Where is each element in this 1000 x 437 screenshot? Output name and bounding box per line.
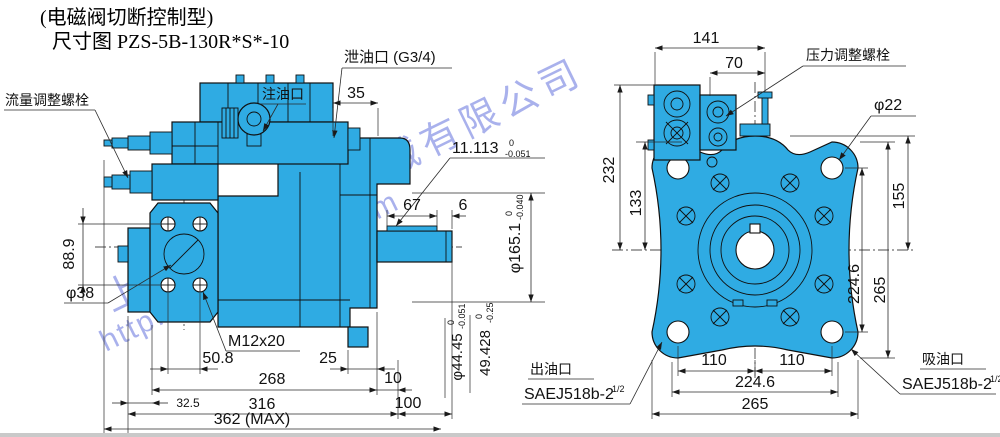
dim-133: 133 bbox=[628, 190, 645, 217]
drawing-canvas: 上海台拓液压机械有限公司 http://www.ttyytw.com (电磁阀切… bbox=[0, 0, 1000, 437]
dim-32-5: 32.5 bbox=[176, 396, 200, 410]
dim-141: 141 bbox=[693, 30, 720, 47]
dim-224-6-v: 224.6 bbox=[846, 264, 863, 304]
mounting-foot bbox=[348, 327, 368, 347]
dim-phi22: φ22 bbox=[874, 97, 902, 114]
dim-key-tol-upper: 0 bbox=[509, 138, 514, 148]
svg-text:吸油口: 吸油口 bbox=[922, 351, 964, 367]
valve-bolt bbox=[266, 75, 274, 83]
dim-70: 70 bbox=[725, 55, 743, 72]
ear-hole-top-right bbox=[821, 157, 843, 179]
svg-text:224.6: 224.6 bbox=[846, 264, 863, 304]
dim-phi38: φ38 bbox=[66, 285, 94, 302]
filler-neck bbox=[247, 134, 261, 146]
valve-bolt bbox=[296, 75, 304, 83]
drawing-model-title: 尺寸图 PZS-5B-130R*S*-10 bbox=[52, 30, 289, 53]
svg-text:SAEJ518b-2: SAEJ518b-2 bbox=[902, 376, 992, 393]
svg-text:φ44.45: φ44.45 bbox=[449, 333, 466, 380]
svg-text:1/2: 1/2 bbox=[990, 374, 1000, 384]
dim-110-left: 110 bbox=[701, 352, 727, 369]
dim-key-width: 11.113 bbox=[452, 140, 499, 157]
dim-35: 35 bbox=[347, 85, 365, 102]
dim-155: 155 bbox=[891, 183, 908, 210]
valve-sub-block bbox=[152, 164, 218, 200]
svg-text:232: 232 bbox=[601, 157, 618, 184]
top-cap bbox=[740, 124, 770, 136]
fill-port-label: 注油口 bbox=[262, 86, 304, 102]
rear-stub bbox=[118, 246, 128, 262]
dim-port-height: 49.428 0 -0.25 bbox=[474, 302, 495, 375]
shaft-key bbox=[387, 226, 437, 231]
manifold-fitting bbox=[348, 128, 360, 150]
dim-pilot-diameter: φ165.1 0 -0.040 bbox=[504, 194, 525, 273]
svg-text:265: 265 bbox=[872, 277, 889, 304]
label-m12x20: M12x20 bbox=[228, 333, 285, 350]
dim-265: 265 bbox=[742, 396, 769, 413]
dim-25: 25 bbox=[319, 350, 337, 367]
dim-100: 100 bbox=[395, 395, 422, 412]
svg-text:SAEJ518b-2: SAEJ518b-2 bbox=[524, 386, 614, 403]
svg-text:φ165.1: φ165.1 bbox=[507, 223, 524, 274]
svg-text:-0.040: -0.040 bbox=[515, 194, 525, 220]
flow-adjust-screw bbox=[104, 132, 172, 154]
dim-port-diameter: φ44.45 0 -0.051 bbox=[446, 303, 467, 380]
svg-text:出油口: 出油口 bbox=[530, 361, 572, 377]
pressure-adjust-label: 压力调整螺栓 bbox=[806, 47, 890, 63]
svg-text:-0.25: -0.25 bbox=[485, 302, 495, 323]
drawing-type-title: (电磁阀切断控制型) bbox=[40, 6, 213, 29]
dim-268: 268 bbox=[259, 371, 286, 388]
shaft-hole bbox=[736, 231, 774, 269]
svg-text:88.9: 88.9 bbox=[61, 238, 78, 269]
svg-text:0: 0 bbox=[446, 320, 456, 325]
dim-265-v: 265 bbox=[872, 277, 889, 304]
top-rod-cap bbox=[758, 92, 772, 98]
dimension-drawing-page: 上海台拓液压机械有限公司 http://www.ttyytw.com (电磁阀切… bbox=[0, 0, 1000, 437]
flange-tab bbox=[767, 300, 777, 306]
svg-text:49.428: 49.428 bbox=[477, 330, 494, 376]
dim-362-max: 362 (MAX) bbox=[214, 411, 290, 428]
svg-text:1/2: 1/2 bbox=[612, 384, 625, 394]
oil-filler-ring-hole bbox=[247, 112, 261, 126]
svg-text:0: 0 bbox=[474, 314, 484, 319]
top-rod bbox=[762, 97, 768, 124]
window-edge bbox=[0, 433, 1000, 437]
lower-adjust-screw bbox=[104, 171, 152, 193]
pump-front-view bbox=[612, 82, 915, 378]
rear-cover bbox=[128, 228, 152, 312]
ear-hole-bottom-right bbox=[821, 321, 843, 343]
dim-67: 67 bbox=[403, 197, 421, 214]
dim-10: 10 bbox=[384, 370, 402, 387]
dim-110-right: 110 bbox=[779, 352, 805, 369]
keyway bbox=[750, 224, 760, 233]
svg-text:-0.051: -0.051 bbox=[457, 303, 467, 329]
svg-text:133: 133 bbox=[628, 190, 645, 217]
svg-text:155: 155 bbox=[891, 183, 908, 210]
valve-bolt bbox=[236, 75, 244, 83]
flange-tab bbox=[733, 300, 743, 306]
flow-adjust-label: 流量调整螺栓 bbox=[5, 92, 89, 108]
outlet-port-label: 出油口 SAEJ518b-2 1/2 bbox=[522, 342, 662, 404]
dim-6: 6 bbox=[459, 197, 468, 214]
dim-224-6: 224.6 bbox=[735, 374, 775, 391]
drain-port-label: 泄油口 (G3/4) bbox=[344, 49, 436, 66]
ear-hole-bottom-left bbox=[667, 321, 689, 343]
drive-shaft bbox=[377, 231, 452, 262]
inlet-port-label: 吸油口 SAEJ518b-2 1/2 bbox=[851, 349, 1000, 394]
dim-88-9: 88.9 bbox=[61, 238, 78, 269]
dim-key-tol-lower: -0.051 bbox=[505, 149, 531, 159]
svg-text:0: 0 bbox=[504, 211, 514, 216]
dim-232: 232 bbox=[601, 157, 618, 184]
dim-50-8: 50.8 bbox=[202, 350, 233, 367]
